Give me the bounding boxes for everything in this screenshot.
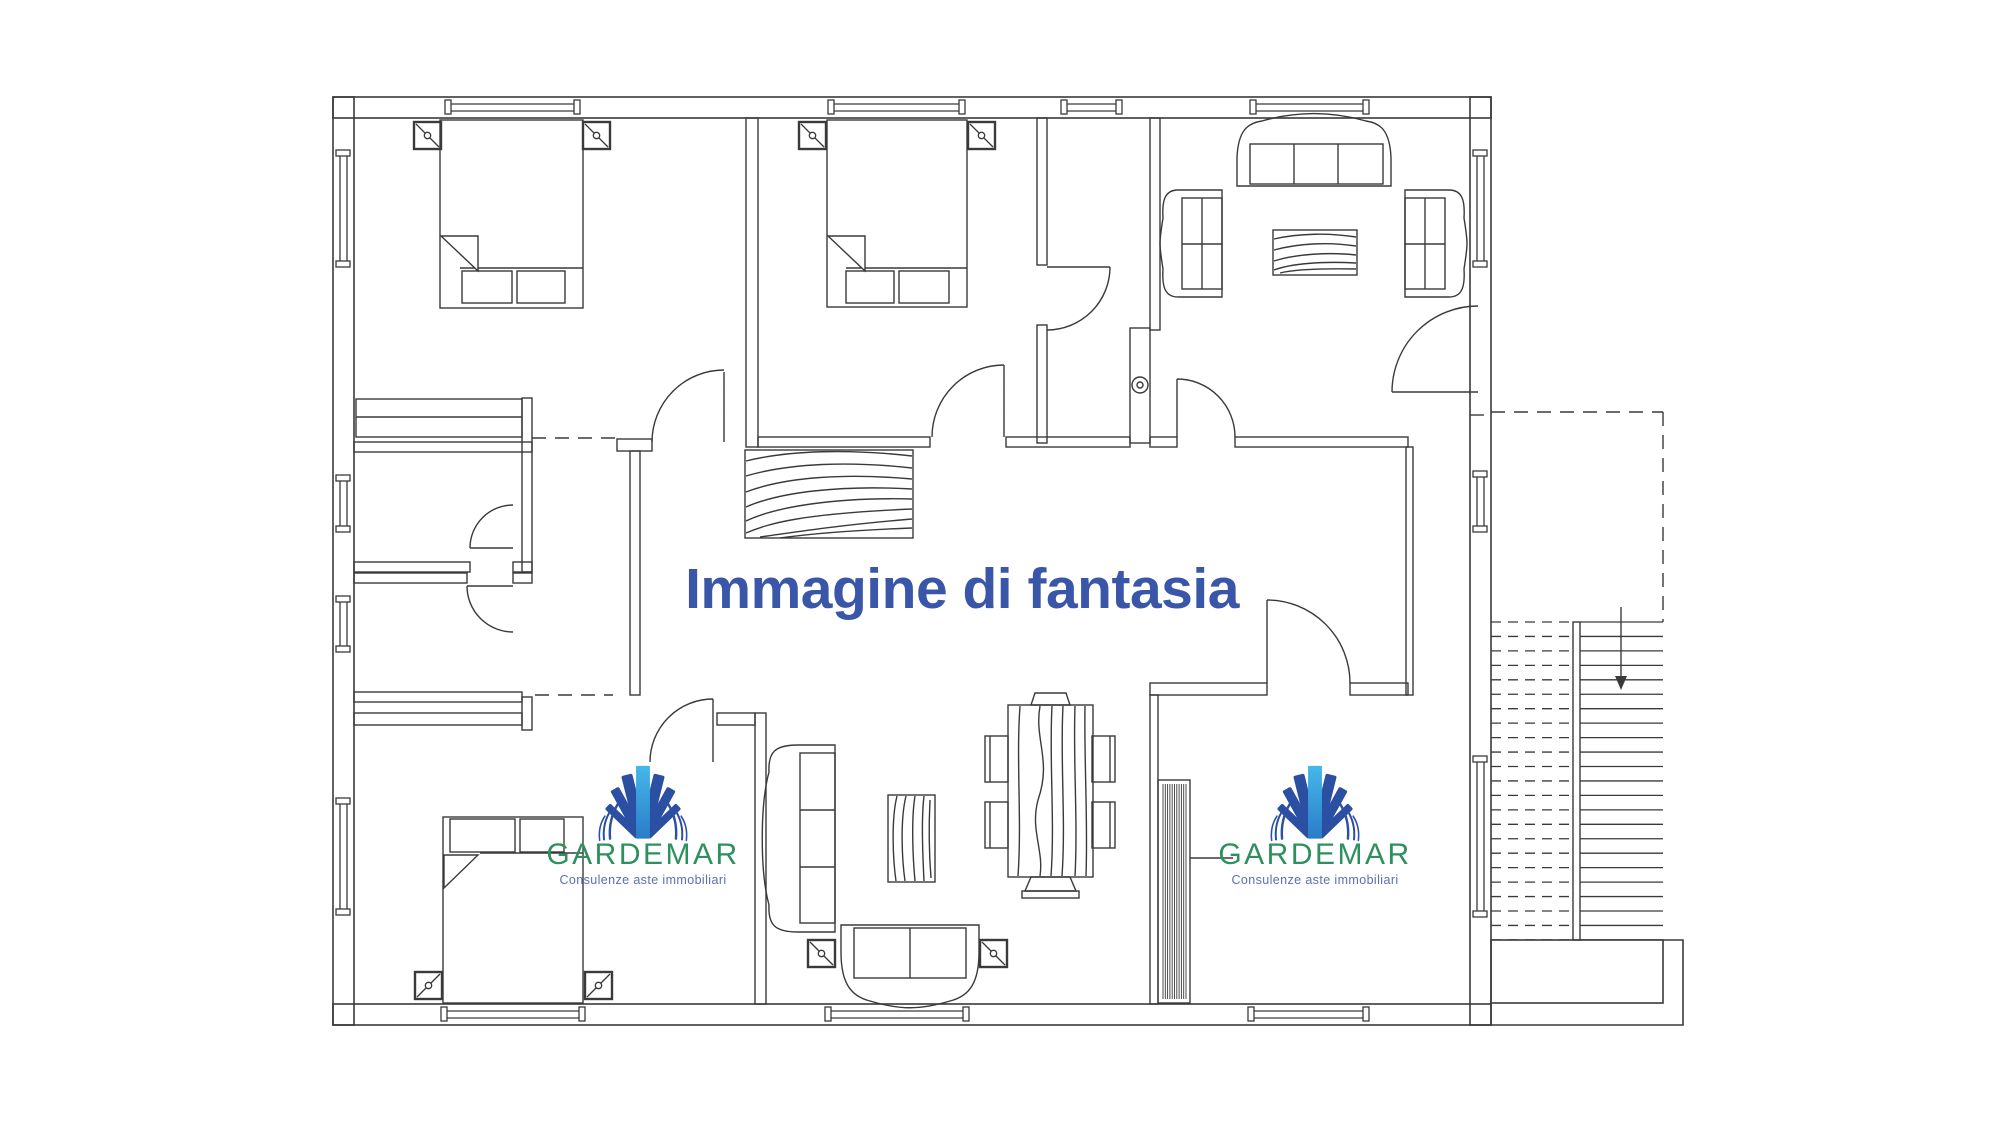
door-bath-b <box>467 586 513 632</box>
window <box>1472 150 1490 267</box>
door-bath-a <box>470 505 513 548</box>
window <box>825 1006 969 1024</box>
staircase <box>1491 607 1663 940</box>
nightstand <box>980 940 1007 967</box>
coffee-table <box>1273 230 1357 275</box>
nightstand <box>968 122 995 149</box>
window <box>335 150 353 267</box>
door-bedroom-3 <box>650 699 713 762</box>
window <box>1472 756 1490 917</box>
gardemar-rays-icon <box>1263 764 1367 844</box>
window <box>335 475 353 532</box>
dashed-openings <box>532 412 1663 695</box>
watermark-text: Immagine di fantasia <box>600 556 1324 622</box>
window <box>441 1006 585 1024</box>
window <box>828 99 965 117</box>
bed-double-1 <box>440 120 583 308</box>
door-hall-east <box>1177 379 1235 437</box>
window <box>1248 1006 1369 1024</box>
armchair-right <box>1405 190 1467 297</box>
door-living-room <box>1392 306 1478 392</box>
nightstand <box>585 972 612 999</box>
window <box>335 798 353 915</box>
door-bedroom-2 <box>932 365 1004 437</box>
wardrobe <box>356 399 522 437</box>
stair-direction-arrow <box>1615 607 1627 690</box>
wood-floor-inlay <box>745 450 913 538</box>
door-bedroom-1 <box>652 370 724 442</box>
loveseat <box>841 925 979 1008</box>
door-swings <box>467 267 1478 762</box>
nightstand <box>799 122 826 149</box>
window <box>445 99 580 117</box>
gardemar-tagline: Consulenze aste immobiliari <box>559 873 726 887</box>
dining-chairs <box>985 736 1115 848</box>
sofa-three-seat <box>1237 114 1391 187</box>
side-table-small <box>888 795 935 882</box>
window <box>1472 471 1490 532</box>
dining-table <box>1008 693 1093 898</box>
stair-stringer <box>1573 622 1580 940</box>
gardemar-wordmark: GARDEMAR <box>1218 838 1411 872</box>
door-vestibule <box>1047 267 1110 330</box>
window <box>1061 99 1122 117</box>
gardemar-logo: GARDEMAR Consulenze aste immobiliari <box>1225 764 1405 887</box>
window <box>335 596 353 652</box>
floor-plan-page: Immagine di fantasia GARDEMAR Consulenze… <box>0 0 2000 1125</box>
sofa-vertical <box>762 745 835 932</box>
armchair-left <box>1160 190 1222 297</box>
gardemar-logo: GARDEMAR Consulenze aste immobiliari <box>553 764 733 887</box>
gardemar-rays-icon <box>591 764 695 844</box>
gardemar-wordmark: GARDEMAR <box>546 838 739 872</box>
nightstand <box>414 122 441 149</box>
tambour-cabinet <box>1158 780 1233 1003</box>
gardemar-tagline: Consulenze aste immobiliari <box>1231 873 1398 887</box>
nightstand <box>808 940 835 967</box>
nightstand <box>583 122 610 149</box>
bed-double-2 <box>827 120 967 307</box>
nightstand <box>415 972 442 999</box>
